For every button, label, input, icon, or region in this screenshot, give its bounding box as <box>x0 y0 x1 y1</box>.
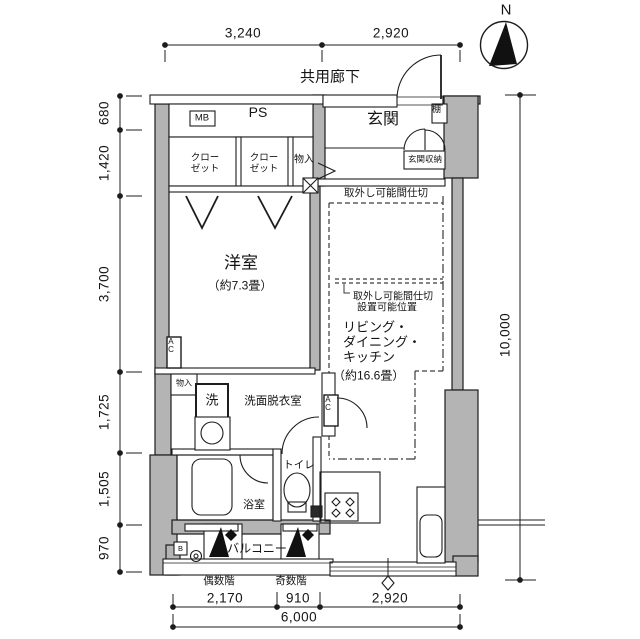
western-room-size: （約7.3畳） <box>208 279 273 292</box>
storage-top-label: 物入 <box>294 154 314 165</box>
bathtub <box>192 459 232 515</box>
entrance-door-arc <box>397 55 441 99</box>
stove <box>325 493 358 521</box>
entrance-storage-label: 玄関収納 <box>408 155 442 165</box>
dim-bottom-2: 910 <box>286 590 310 605</box>
room-label-entrance: 玄関 <box>367 111 399 129</box>
ldk-window-wall <box>330 562 456 576</box>
window-toilet <box>283 524 317 531</box>
entrance-storage-doors <box>404 129 445 150</box>
dim-top-1: 3,240 <box>225 25 261 40</box>
mb-box-label: MB <box>195 114 209 125</box>
ldk-door-arc <box>337 398 367 428</box>
kitchen-counter-right <box>417 487 445 563</box>
closet-door-mark-2 <box>258 196 292 228</box>
wall-entrance-bottom <box>318 179 445 186</box>
wall-right-window <box>452 178 463 390</box>
closet2-label: クロー ゼット <box>250 153 279 174</box>
closet1-label: クロー ゼット <box>191 153 220 174</box>
bath-label: 浴室 <box>243 499 265 511</box>
wall-closet-divider-2 <box>288 137 293 186</box>
wall-closet-bottom <box>169 186 318 192</box>
washroom-label: 洗面脱衣室 <box>244 396 302 409</box>
room-label-ps: PS <box>249 105 268 121</box>
wall-corridor-band-entrance <box>323 95 397 107</box>
bath-door-arc <box>240 455 268 483</box>
outlet-symbol-inner <box>194 554 198 558</box>
storage-small-label: 物入 <box>176 380 192 389</box>
wall-closet-divider-1 <box>236 137 241 186</box>
north-label: N <box>501 3 512 20</box>
dim-left-6: 970 <box>96 536 111 560</box>
partition-top-label: 取外し可能間仕切 <box>344 188 428 200</box>
dim-line-top <box>165 45 460 62</box>
wall-toilet-left <box>273 449 281 521</box>
north-arrow-icon <box>481 22 528 69</box>
dim-bottom-1: 2,170 <box>207 590 243 605</box>
closet2-line2: ゼット <box>250 164 279 175</box>
neighbor-divider-line <box>478 520 545 525</box>
wall-western-ldk-divider <box>310 186 320 370</box>
wall-corner-bottom-right <box>453 556 478 576</box>
balcony-rail <box>163 559 333 575</box>
dim-line-left <box>120 96 142 572</box>
wall-left-mid <box>155 370 171 455</box>
dim-bottom-total: 6,000 <box>281 609 317 624</box>
diamond-marker <box>382 576 394 590</box>
wall-corridor-band-left <box>150 95 323 104</box>
wall-entrance-right-block <box>444 96 478 178</box>
partition-pos-label-2: 設置可能位置 <box>357 302 417 313</box>
odd-floor-label: 奇数階 <box>275 576 307 588</box>
wall-right-thick <box>445 390 478 562</box>
b-box-label: B <box>178 544 183 552</box>
ac-label-ldk: AC <box>323 395 332 411</box>
even-floor-label: 偶数階 <box>203 576 235 588</box>
dim-right: 10,000 <box>497 313 512 357</box>
wall-ps-entrance-divider <box>313 95 325 186</box>
wall-western-bottom <box>155 368 315 374</box>
toilet-label: トイレ <box>283 460 315 472</box>
dim-top-2: 2,920 <box>373 25 409 40</box>
ac-label-western: AC <box>166 337 175 353</box>
closet-door-mark-1 <box>186 196 218 228</box>
dim-left-1: 680 <box>96 101 111 125</box>
dim-left-3: 3,700 <box>96 266 111 302</box>
washer-label: 洗 <box>205 394 218 409</box>
ldk-name-line2: ダイニング・ <box>343 336 421 351</box>
floor-plan: 共用廊下 PS MB 玄関 玄関収納 棚 クロー ゼット クロー ゼット 物入 … <box>0 0 640 639</box>
dim-left-5: 1,505 <box>96 471 111 507</box>
stove-burner-icons <box>332 498 354 517</box>
dim-bottom-3: 2,920 <box>372 590 408 605</box>
shelf-label: 棚 <box>431 104 441 112</box>
ldk-name-line1: リビング・ <box>343 321 408 336</box>
room-label-corridor: 共用廊下 <box>300 70 360 87</box>
partition-pos-label-1: 取外し可能間仕切 <box>353 291 433 302</box>
ldk-size: （約16.6畳） <box>333 369 404 382</box>
dim-left-2: 1,420 <box>96 145 111 181</box>
dim-left-4: 1,725 <box>96 394 111 430</box>
closet1-line2: ゼット <box>191 164 220 175</box>
western-room-name: 洋室 <box>224 253 258 272</box>
ldk-name-line3: キッチン <box>343 351 395 366</box>
balcony-label: バルコニー <box>227 542 287 555</box>
